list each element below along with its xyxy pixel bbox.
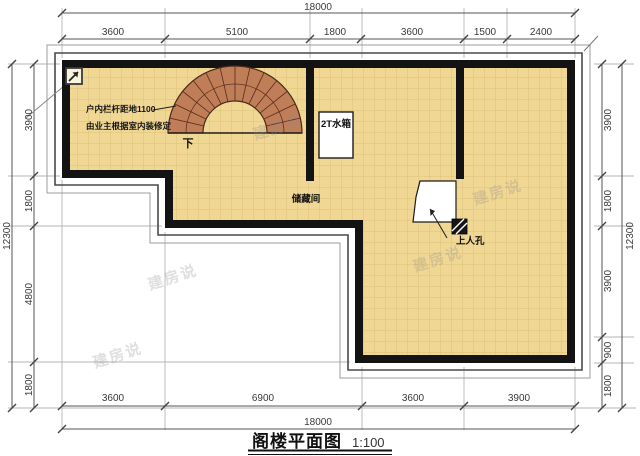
dim-right-seg: 900 bbox=[603, 341, 614, 358]
floor-plan-svg: 2T水箱 户内栏杆距地1100 由业主根据室内装修定 储藏间 上人孔 下 建房说… bbox=[0, 0, 640, 456]
water-tank: 2T水箱 bbox=[319, 112, 353, 158]
dim-right-overall: 12300 bbox=[625, 222, 636, 250]
dim-left-seg: 3900 bbox=[24, 108, 35, 131]
stair-down-label: 下 bbox=[183, 137, 194, 150]
dim-left-seg: 1800 bbox=[24, 189, 35, 212]
dim-top-seg: 5100 bbox=[226, 27, 249, 38]
dim-right-seg: 3900 bbox=[603, 269, 614, 292]
dim-left-seg: 1800 bbox=[24, 373, 35, 396]
dim-left-overall: 12300 bbox=[2, 222, 13, 250]
dim-top-seg: 1500 bbox=[474, 27, 497, 38]
dim-top-seg: 3600 bbox=[102, 27, 125, 38]
water-tank-label: 2T水箱 bbox=[321, 118, 352, 130]
right-dimension-chain: 3900 1800 3900 900 1800 12300 bbox=[603, 108, 636, 397]
bottom-dimension-chain: 3600 6900 3600 3900 18000 bbox=[102, 393, 531, 428]
manhole-label: 上人孔 bbox=[456, 235, 485, 247]
dim-bottom-seg: 3900 bbox=[508, 393, 531, 404]
dim-top-seg: 3600 bbox=[401, 27, 424, 38]
storage-room-label: 储藏间 bbox=[292, 193, 321, 205]
dim-bottom-overall: 18000 bbox=[304, 417, 332, 428]
dim-bottom-seg: 3600 bbox=[102, 393, 125, 404]
attic-floor-plan-drawing: 2T水箱 户内栏杆距地1100 由业主根据室内装修定 储藏间 上人孔 下 建房说… bbox=[0, 0, 640, 456]
railing-note-line1: 户内栏杆距地1100 bbox=[85, 104, 156, 114]
dim-top-seg: 2400 bbox=[530, 27, 553, 38]
dim-right-seg: 3900 bbox=[603, 108, 614, 131]
dim-bottom-seg: 3600 bbox=[402, 393, 425, 404]
drawing-title-block: 阁楼平面图 1:100 bbox=[248, 431, 392, 455]
dim-top-seg: 1800 bbox=[324, 27, 347, 38]
watermark-text: 建房说 bbox=[146, 261, 200, 294]
watermark-text: 建房说 bbox=[91, 339, 145, 372]
left-dimension-chain: 3900 1800 4800 1800 12300 bbox=[2, 108, 35, 396]
dim-right-seg: 1800 bbox=[603, 374, 614, 397]
drawing-scale: 1:100 bbox=[352, 435, 385, 450]
top-dimension-chain: 18000 3600 5100 1800 3600 1500 2400 bbox=[102, 2, 553, 38]
page-title: 阁楼平面图 bbox=[252, 431, 342, 451]
roof-corner-mark bbox=[584, 36, 598, 51]
railing-note-line2: 由业主根据室内装修定 bbox=[86, 121, 172, 131]
dim-bottom-seg: 6900 bbox=[252, 393, 275, 404]
dim-top-overall: 18000 bbox=[304, 2, 332, 13]
dim-right-seg: 1800 bbox=[603, 189, 614, 212]
dim-left-seg: 4800 bbox=[24, 282, 35, 305]
roof-hatch-symbol bbox=[452, 219, 467, 234]
corner-symbol bbox=[66, 68, 82, 84]
